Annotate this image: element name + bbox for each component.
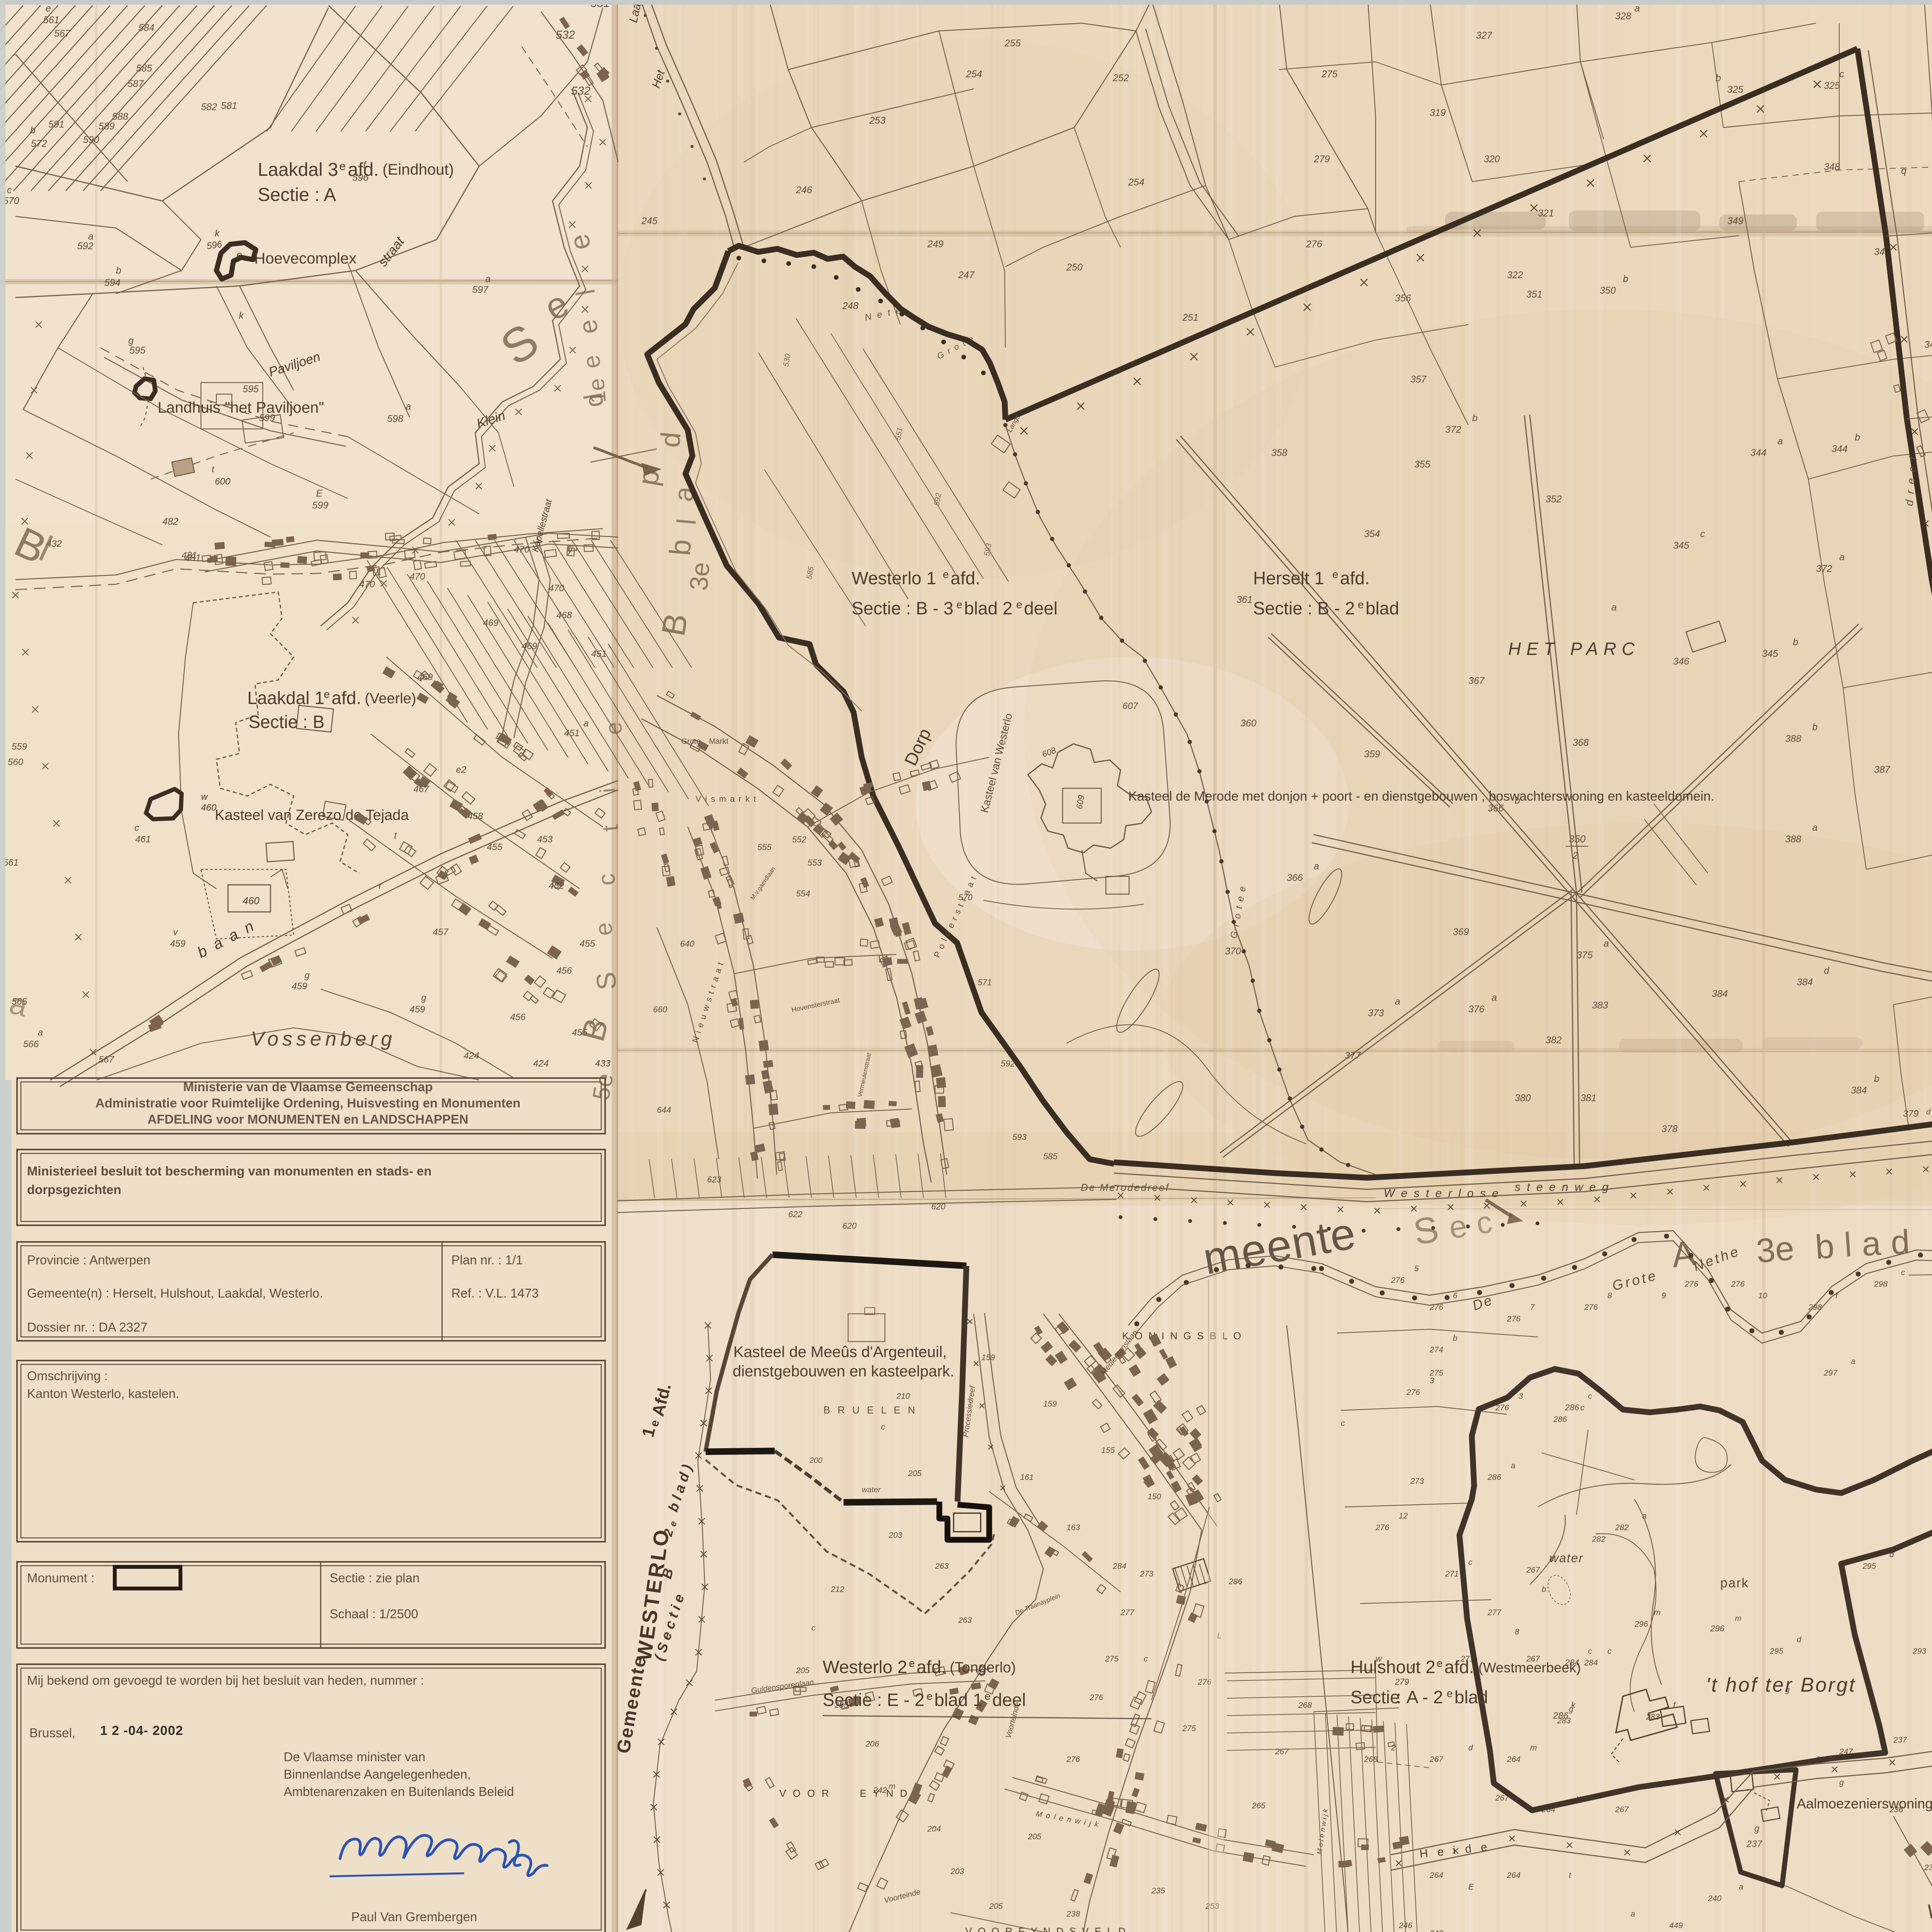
- svg-text:246: 246: [796, 185, 812, 196]
- svg-text:Sectie : zie plan: Sectie : zie plan: [330, 1571, 420, 1585]
- svg-text:552: 552: [792, 835, 806, 844]
- svg-text:286: 286: [1487, 1473, 1501, 1482]
- svg-text:345: 345: [1762, 648, 1778, 659]
- svg-text::: :: [1396, 1687, 1401, 1707]
- svg-text:e: e: [985, 1690, 991, 1702]
- svg-text:t: t: [212, 464, 214, 474]
- svg-text:b: b: [1814, 1227, 1835, 1266]
- svg-text:275: 275: [1182, 1724, 1196, 1733]
- svg-text:a: a: [1492, 992, 1497, 1003]
- svg-text:b: b: [1874, 1073, 1879, 1084]
- svg-text:276: 276: [1507, 1315, 1520, 1323]
- svg-text:481: 481: [182, 550, 197, 561]
- svg-text:Binnenlandse Aangelegenheden,: Binnenlandse Aangelegenheden,: [284, 1767, 471, 1781]
- svg-text:W e s t e r l o s e: W e s t e r l o s e: [1384, 1187, 1500, 1200]
- svg-text:354: 354: [1364, 529, 1380, 539]
- svg-text:155: 155: [1101, 1446, 1115, 1455]
- svg-text:276: 276: [1375, 1523, 1389, 1532]
- svg-text:253: 253: [869, 115, 886, 126]
- svg-text:383: 383: [1592, 1000, 1608, 1011]
- svg-text:a: a: [1739, 1883, 1743, 1891]
- svg-text:561: 561: [43, 15, 60, 26]
- svg-text:555: 555: [757, 842, 772, 852]
- svg-text:A - 2: A - 2: [1406, 1687, 1443, 1707]
- svg-text:470: 470: [514, 544, 530, 555]
- svg-text:HET PARC: HET PARC: [1508, 639, 1640, 659]
- svg-text:203: 203: [888, 1531, 902, 1540]
- svg-text:247: 247: [958, 270, 975, 281]
- svg-text:599: 599: [259, 413, 275, 423]
- svg-text:Paul Van Grembergen: Paul Van Grembergen: [351, 1910, 477, 1924]
- svg-text:V i s m a r k t: V i s m a r k t: [696, 794, 757, 804]
- svg-text:470: 470: [359, 579, 375, 590]
- svg-text:238: 238: [1066, 1910, 1080, 1918]
- svg-text:c: c: [1839, 69, 1844, 80]
- svg-text:453: 453: [537, 834, 553, 845]
- svg-text:380: 380: [1515, 1093, 1531, 1104]
- svg-text:m: m: [1735, 1614, 1742, 1623]
- svg-text:600: 600: [215, 476, 231, 487]
- svg-text:455: 455: [580, 939, 595, 949]
- svg-text:594: 594: [104, 277, 121, 288]
- svg-text:V O O R E Y N D S V E L D: V O O R E Y N D S V E L D: [965, 1925, 1127, 1932]
- svg-text:d: d: [1468, 1743, 1473, 1752]
- svg-text:park: park: [1720, 1576, 1749, 1590]
- svg-text:286: 286: [1553, 1711, 1569, 1721]
- svg-text:644: 644: [657, 1105, 671, 1115]
- svg-text:570: 570: [3, 196, 19, 206]
- svg-text:w: w: [201, 792, 208, 802]
- svg-text:459: 459: [410, 1004, 425, 1015]
- svg-text:c: c: [881, 1423, 885, 1432]
- svg-text:361: 361: [1236, 594, 1253, 605]
- svg-text:593: 593: [1012, 1132, 1027, 1142]
- svg-text:a: a: [406, 401, 411, 412]
- svg-text:344: 344: [1750, 447, 1767, 458]
- svg-text:a: a: [1839, 552, 1845, 563]
- svg-text:b: b: [1812, 722, 1818, 733]
- svg-text:c: c: [1607, 1647, 1612, 1656]
- svg-text:203: 203: [950, 1867, 964, 1876]
- svg-text:Vossenberg: Vossenberg: [251, 1028, 396, 1050]
- svg-text:255: 255: [1004, 38, 1021, 49]
- svg-text:dienstgebouwen en kasteelpark.: dienstgebouwen en kasteelpark.: [733, 1363, 954, 1380]
- svg-text:455: 455: [487, 842, 503, 852]
- svg-text:350: 350: [1600, 285, 1616, 296]
- svg-text:b: b: [1542, 1585, 1546, 1594]
- svg-text:469: 469: [483, 618, 498, 628]
- svg-text:v: v: [173, 927, 179, 937]
- svg-text:210: 210: [896, 1392, 910, 1401]
- svg-text:349: 349: [1727, 216, 1743, 226]
- svg-text:622: 622: [788, 1209, 803, 1219]
- svg-text:Ministerie van de Vlaamse Geme: Ministerie van de Vlaamse Gemeenschap: [183, 1080, 433, 1094]
- svg-text:381: 381: [1580, 1093, 1597, 1104]
- svg-text:c: c: [1144, 1655, 1148, 1663]
- svg-text:268: 268: [1364, 1755, 1378, 1764]
- svg-text:297: 297: [1823, 1369, 1838, 1378]
- svg-text:275: 275: [1321, 69, 1338, 80]
- svg-text:e: e: [1016, 599, 1022, 611]
- svg-text:277: 277: [1487, 1608, 1502, 1617]
- svg-text:268: 268: [1298, 1701, 1312, 1710]
- svg-text:359: 359: [1364, 749, 1380, 760]
- svg-text:298: 298: [1808, 1303, 1822, 1312]
- svg-text:Herselt 1: Herselt 1: [1253, 568, 1324, 588]
- svg-text:g: g: [304, 970, 310, 981]
- svg-text:276: 276: [1306, 239, 1322, 250]
- svg-text:3: 3: [1519, 1392, 1523, 1401]
- svg-text:295: 295: [1769, 1647, 1783, 1656]
- svg-text:e: e: [943, 568, 949, 580]
- svg-text:433: 433: [595, 1058, 611, 1069]
- svg-text:252: 252: [1112, 73, 1129, 83]
- svg-text:A: A: [1670, 1233, 1697, 1275]
- svg-text:279: 279: [1395, 1677, 1409, 1687]
- svg-text:267: 267: [1526, 1566, 1540, 1575]
- svg-text:d: d: [1890, 1223, 1911, 1262]
- svg-text:279: 279: [1313, 154, 1330, 165]
- svg-text:276: 276: [1066, 1755, 1080, 1764]
- svg-text:451: 451: [564, 728, 580, 738]
- svg-text:afd.: afd.: [951, 568, 980, 588]
- svg-text:344: 344: [1832, 444, 1848, 454]
- svg-text:456: 456: [556, 966, 572, 976]
- svg-text:468: 468: [556, 610, 572, 621]
- svg-text:g: g: [421, 993, 427, 1003]
- svg-text:205: 205: [989, 1902, 1003, 1911]
- svg-text:Kasteel de Merode met donj: Kasteel de Merode met donjon + poort - e…: [1128, 789, 1714, 804]
- svg-text:589: 589: [99, 121, 115, 132]
- svg-text:352: 352: [1546, 494, 1562, 505]
- svg-text:3e: 3e: [684, 561, 715, 592]
- svg-text:c: c: [593, 872, 621, 887]
- svg-text:346: 346: [1673, 656, 1689, 667]
- svg-text:a: a: [583, 718, 588, 729]
- svg-text:5e: 5e: [588, 1071, 619, 1102]
- svg-text:470: 470: [549, 583, 565, 594]
- svg-text:y: y: [567, 544, 573, 555]
- svg-text:276: 276: [1391, 1276, 1405, 1285]
- svg-text:s t e e n w e g: s t e e n w e g: [1515, 1181, 1610, 1194]
- svg-text:296: 296: [1634, 1620, 1648, 1629]
- svg-text:Dossier nr. : DA 2327: Dossier nr. : DA 2327: [27, 1320, 148, 1334]
- svg-text:3: 3: [1430, 1376, 1434, 1385]
- svg-text:c: c: [1588, 1392, 1592, 1401]
- svg-text:w: w: [1376, 1654, 1383, 1663]
- svg-text:a: a: [38, 1027, 43, 1038]
- svg-text:620: 620: [842, 1221, 857, 1231]
- svg-text:561: 561: [3, 857, 19, 868]
- svg-text:572: 572: [31, 138, 47, 149]
- svg-text:382: 382: [1546, 1035, 1562, 1046]
- svg-text:459: 459: [170, 939, 185, 949]
- svg-text:235: 235: [1151, 1886, 1165, 1895]
- svg-text:387: 387: [1874, 764, 1891, 775]
- svg-text:b: b: [1623, 274, 1628, 284]
- svg-text:E Y N D: E Y N D: [860, 1787, 909, 1799]
- svg-text:286: 286: [1565, 1403, 1579, 1412]
- svg-text:373: 373: [1368, 1008, 1384, 1019]
- svg-text:g: g: [128, 335, 134, 346]
- svg-text:276: 276: [1429, 1303, 1443, 1312]
- svg-text:e2: e2: [456, 765, 466, 775]
- svg-text:a: a: [1634, 3, 1640, 14]
- svg-text:205: 205: [908, 1469, 922, 1478]
- svg-text:r: r: [379, 881, 382, 891]
- svg-text:452: 452: [549, 881, 564, 891]
- svg-text:640: 640: [680, 939, 694, 949]
- svg-text:459: 459: [292, 981, 307, 992]
- svg-text:275: 275: [1105, 1655, 1119, 1663]
- svg-text:5: 5: [1414, 1264, 1419, 1273]
- svg-text:K O N I N G S B L O: K O N I N G S B L O: [1122, 1330, 1243, 1342]
- svg-text:161: 161: [1020, 1473, 1034, 1482]
- svg-text:AFDELING voor MONUMENTEN en LA: AFDELING voor MONUMENTEN en LANDSCHAPPEN: [148, 1112, 469, 1126]
- svg-text:263: 263: [958, 1616, 972, 1625]
- svg-text:532: 532: [556, 29, 575, 41]
- svg-text:327: 327: [1476, 30, 1493, 41]
- svg-text:607: 607: [1122, 701, 1139, 711]
- svg-text:Laakdal 3: Laakdal 3: [258, 160, 338, 180]
- svg-text:592: 592: [1001, 1059, 1015, 1068]
- svg-text:deel: deel: [992, 1690, 1026, 1710]
- svg-text:274: 274: [1429, 1345, 1443, 1354]
- svg-text:Landhuis "het Paviljoen": Landhuis "het Paviljoen": [158, 399, 324, 416]
- svg-text:Sectie : A: Sectie : A: [258, 185, 336, 205]
- svg-text:Ref. : V.L. 1473: Ref. : V.L. 1473: [451, 1286, 539, 1300]
- svg-text:246: 246: [1398, 1921, 1412, 1930]
- svg-text:265: 265: [1252, 1801, 1265, 1810]
- svg-text:388: 388: [1785, 733, 1801, 744]
- svg-text:De Vlaamse minister van: De Vlaamse minister van: [284, 1750, 425, 1764]
- svg-text:358: 358: [1271, 447, 1287, 458]
- svg-text:298: 298: [1874, 1280, 1888, 1289]
- svg-text:a: a: [1777, 436, 1783, 447]
- svg-text:c: c: [1468, 1558, 1473, 1567]
- svg-text:a: a: [1861, 1224, 1882, 1263]
- svg-text:277: 277: [1120, 1608, 1134, 1617]
- svg-text:afd.: afd.: [917, 1657, 946, 1677]
- svg-text:250: 250: [1066, 262, 1083, 273]
- svg-text:366: 366: [1287, 872, 1303, 883]
- svg-text:e: e: [1332, 568, 1338, 580]
- svg-text:595: 595: [243, 384, 259, 395]
- svg-text:204: 204: [927, 1825, 941, 1833]
- svg-text:e: e: [927, 1690, 933, 1702]
- svg-text:c: c: [1588, 1647, 1592, 1656]
- svg-text:1e: 1e: [584, 378, 611, 405]
- svg-text:a: a: [1314, 861, 1319, 872]
- svg-text:276: 276: [1684, 1280, 1698, 1289]
- svg-text:12: 12: [1399, 1512, 1408, 1520]
- svg-text:590: 590: [83, 134, 99, 145]
- svg-text:286: 286: [1553, 1415, 1567, 1424]
- svg-text:460: 460: [201, 803, 217, 813]
- svg-text:a: a: [1631, 1910, 1635, 1918]
- svg-text:e: e: [1447, 1687, 1453, 1699]
- svg-text:264: 264: [1507, 1755, 1520, 1764]
- svg-text:a: a: [1395, 996, 1400, 1007]
- svg-text:372: 372: [1445, 424, 1461, 435]
- svg-text:251: 251: [1182, 312, 1199, 323]
- svg-text:Kasteel van Zerezo de Tejada: Kasteel van Zerezo de Tejada: [215, 807, 409, 823]
- svg-text:E: E: [316, 488, 323, 499]
- svg-text:afd.: afd.: [332, 688, 361, 708]
- svg-text:d: d: [1797, 1635, 1802, 1644]
- svg-text:b: b: [30, 125, 36, 136]
- svg-text:554: 554: [796, 889, 810, 898]
- svg-text:249: 249: [927, 239, 944, 250]
- svg-text:254: 254: [1128, 177, 1145, 188]
- svg-text:Sectie : B: Sectie : B: [248, 712, 325, 732]
- svg-text:water: water: [862, 1486, 881, 1494]
- svg-text:a: a: [1611, 602, 1617, 613]
- svg-text:293: 293: [1912, 1647, 1926, 1656]
- svg-text:3e: 3e: [1755, 1229, 1796, 1270]
- svg-text:Aalmoezenierswoning: Aalmoezenierswoning: [1797, 1796, 1932, 1811]
- svg-text:254: 254: [966, 69, 982, 80]
- svg-text:245: 245: [641, 216, 658, 226]
- svg-text:a: a: [1812, 822, 1818, 833]
- svg-text:a: a: [485, 274, 491, 284]
- svg-text:273: 273: [1139, 1570, 1153, 1578]
- svg-text:(Westmeerbeek): (Westmeerbeek): [1478, 1660, 1581, 1675]
- svg-text:Kasteel de Meeûs d'Argenteuil,: Kasteel de Meeûs d'Argenteuil,: [733, 1344, 947, 1361]
- svg-text:212: 212: [830, 1585, 844, 1594]
- svg-text:2: 2: [1391, 1743, 1396, 1752]
- svg-text:a: a: [1511, 1461, 1515, 1470]
- svg-text:Voor: Voor: [1926, 1901, 1932, 1923]
- svg-text:206: 206: [865, 1740, 879, 1748]
- svg-text:Ministerieel besluit tot besch: Ministerieel besluit tot bescherming van…: [27, 1164, 432, 1178]
- svg-text:159: 159: [1043, 1400, 1057, 1408]
- svg-text:286: 286: [1228, 1577, 1242, 1586]
- svg-text:379: 379: [1903, 1109, 1918, 1119]
- svg-text:205: 205: [1027, 1832, 1041, 1841]
- svg-text:blad 1: blad 1: [934, 1690, 983, 1710]
- svg-text:424: 424: [533, 1058, 549, 1069]
- svg-text:De Merodedreef: De Merodedreef: [1081, 1182, 1170, 1193]
- svg-text:597: 597: [472, 284, 489, 295]
- svg-text:c: c: [811, 1624, 816, 1633]
- svg-text:Administratie voor Ruimtelijke: Administratie voor Ruimtelijke Ordening,…: [95, 1096, 520, 1110]
- svg-text:263: 263: [935, 1562, 949, 1571]
- svg-text:b: b: [116, 265, 121, 276]
- svg-text:355: 355: [1414, 459, 1430, 470]
- svg-text:458: 458: [468, 811, 483, 821]
- svg-text:319: 319: [1430, 107, 1446, 118]
- svg-text:368: 368: [1573, 737, 1589, 748]
- svg-text:e: e: [46, 3, 51, 14]
- svg-text:388: 388: [1785, 834, 1801, 845]
- svg-text:c: c: [7, 185, 12, 196]
- svg-text:296: 296: [1710, 1624, 1725, 1633]
- svg-text:b: b: [663, 538, 697, 557]
- svg-text:b: b: [1793, 637, 1798, 648]
- svg-text:598: 598: [387, 413, 403, 424]
- svg-text:276: 276: [1584, 1303, 1598, 1312]
- svg-text:Westerlo 2: Westerlo 2: [823, 1657, 907, 1677]
- svg-text:a: a: [1604, 938, 1609, 949]
- svg-text:Ambtenarenzaken en Buitenlands: Ambtenarenzaken en Buitenlands Beleid: [284, 1784, 514, 1799]
- svg-text:271: 271: [1445, 1570, 1459, 1578]
- svg-text:267: 267: [1429, 1755, 1444, 1764]
- svg-text:Kanton Westerlo, kastelen.: Kanton Westerlo, kastelen.: [27, 1386, 179, 1401]
- svg-text:560: 560: [8, 757, 24, 767]
- svg-text:Hulshout 2: Hulshout 2: [1350, 1657, 1435, 1677]
- svg-text:295: 295: [1862, 1562, 1876, 1571]
- svg-text:584: 584: [138, 22, 155, 33]
- svg-text:384: 384: [1712, 988, 1728, 999]
- svg-text:Westerlo 1: Westerlo 1: [852, 568, 936, 588]
- svg-text:264: 264: [1507, 1871, 1520, 1880]
- svg-text:e: e: [1358, 599, 1364, 611]
- svg-text:321: 321: [1538, 208, 1554, 219]
- svg-text:afd.: afd.: [1340, 568, 1370, 588]
- svg-text:599: 599: [312, 500, 328, 511]
- svg-text:Hoevecomplex: Hoevecomplex: [254, 250, 357, 267]
- svg-text:351: 351: [1526, 289, 1543, 300]
- svg-text:384: 384: [1851, 1085, 1867, 1096]
- svg-text:b: b: [1855, 432, 1860, 443]
- svg-text:470: 470: [410, 571, 425, 582]
- svg-text:e: e: [1437, 1657, 1443, 1669]
- svg-text:467: 467: [413, 784, 430, 794]
- svg-text:457: 457: [433, 927, 449, 937]
- svg-text:c: c: [134, 823, 139, 833]
- svg-text:620: 620: [931, 1202, 946, 1211]
- svg-text:Gemeente(n) : Herselt, Hulshou: Gemeente(n) : Herselt, Hulshout, Laakdal…: [27, 1286, 323, 1300]
- svg-text:325: 325: [1727, 84, 1743, 95]
- svg-text:233: 233: [1924, 1863, 1932, 1872]
- svg-text:267: 267: [1275, 1747, 1289, 1756]
- svg-text:276: 276: [1406, 1388, 1420, 1397]
- svg-text:'t hof ter Borgt: 't hof ter Borgt: [1706, 1674, 1856, 1696]
- svg-text:c: c: [1580, 1403, 1585, 1412]
- svg-text:559: 559: [12, 742, 27, 752]
- svg-text:345: 345: [1924, 339, 1932, 350]
- svg-text:384: 384: [1797, 977, 1813, 988]
- svg-text:237: 237: [1893, 1736, 1907, 1745]
- svg-text:449: 449: [1669, 1921, 1683, 1930]
- svg-text:376: 376: [1468, 1004, 1485, 1015]
- svg-text:8: 8: [1515, 1628, 1519, 1636]
- svg-text:240: 240: [1708, 1894, 1721, 1903]
- svg-text:320: 320: [1484, 154, 1500, 165]
- svg-text:451: 451: [591, 649, 607, 659]
- svg-text:348: 348: [1824, 162, 1840, 172]
- svg-text:469: 469: [522, 641, 537, 651]
- svg-text:Sectie: Sectie: [1350, 1687, 1400, 1707]
- svg-text:345: 345: [1673, 540, 1689, 551]
- svg-text:e: e: [339, 160, 346, 173]
- svg-text:k: k: [239, 310, 244, 321]
- svg-text:7: 7: [1530, 1303, 1535, 1312]
- svg-text:c: c: [1341, 1419, 1345, 1428]
- svg-text:566: 566: [23, 1039, 39, 1049]
- svg-text:c: c: [1901, 1268, 1905, 1277]
- svg-text:322: 322: [1507, 270, 1523, 281]
- svg-text:g: g: [1839, 1778, 1844, 1787]
- svg-text:596: 596: [352, 172, 369, 183]
- svg-text:482: 482: [162, 516, 179, 527]
- svg-text:282: 282: [1592, 1535, 1605, 1544]
- svg-text:E: E: [1468, 1883, 1474, 1891]
- svg-text:8: 8: [1607, 1291, 1612, 1300]
- svg-text:blad: blad: [1454, 1687, 1488, 1707]
- svg-text:592: 592: [77, 241, 94, 252]
